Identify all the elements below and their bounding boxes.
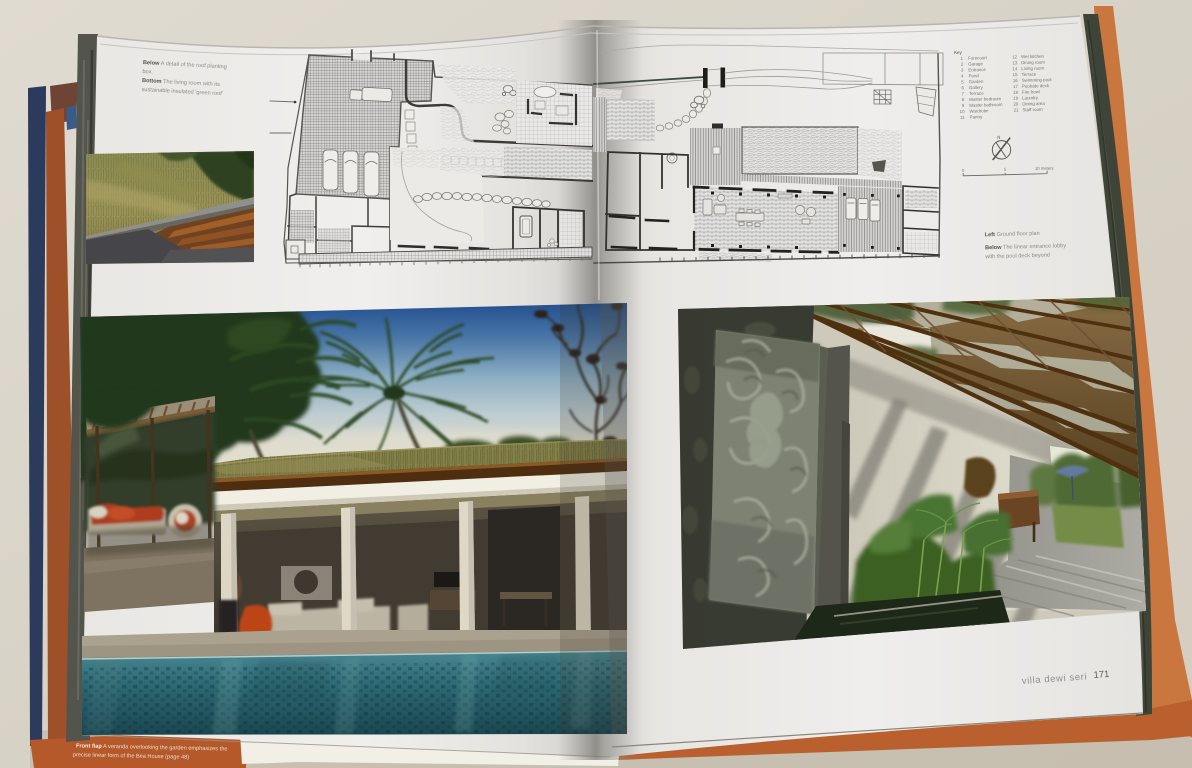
svg-text:Living room: Living room — [1021, 65, 1044, 71]
svg-text:Poolside deck: Poolside deck — [1022, 83, 1050, 89]
svg-text:Wet kitchen: Wet kitchen — [1021, 54, 1045, 60]
svg-text:Dining area: Dining area — [1022, 101, 1045, 107]
svg-text:Wardrobe: Wardrobe — [969, 108, 989, 114]
svg-text:N: N — [997, 135, 1000, 140]
svg-text:Dining room: Dining room — [1021, 60, 1045, 66]
svg-text:Fire bowl: Fire bowl — [1022, 89, 1040, 94]
svg-text:Garage: Garage — [968, 61, 983, 66]
svg-text:Pond: Pond — [968, 73, 979, 78]
svg-text:Forecourt: Forecourt — [968, 55, 988, 61]
svg-text:Master bathroom: Master bathroom — [969, 102, 1003, 108]
svg-text:15: 15 — [1013, 72, 1019, 77]
svg-text:Entrance: Entrance — [968, 67, 986, 72]
svg-text:box.: box. — [142, 69, 153, 76]
svg-text:Key: Key — [954, 50, 963, 55]
svg-text:11: 11 — [960, 115, 965, 120]
svg-text:Gallery: Gallery — [969, 85, 984, 90]
svg-text:10: 10 — [960, 109, 966, 114]
svg-text:13: 13 — [1012, 60, 1018, 65]
svg-text:Swimming pool: Swimming pool — [1022, 77, 1052, 83]
svg-text:18: 18 — [1013, 90, 1019, 95]
svg-text:14: 14 — [1012, 66, 1018, 71]
svg-text:Terrace: Terrace — [1021, 72, 1036, 77]
svg-text:Pantry: Pantry — [970, 114, 984, 119]
svg-text:21: 21 — [1014, 107, 1020, 112]
svg-text:19: 19 — [1013, 96, 1019, 101]
svg-text:12: 12 — [1012, 54, 1018, 59]
svg-text:Terrace: Terrace — [969, 91, 984, 96]
svg-text:Laundry: Laundry — [1022, 95, 1039, 100]
svg-text:10 meters: 10 meters — [1035, 165, 1054, 170]
svg-text:17: 17 — [1013, 84, 1019, 89]
svg-text:20: 20 — [1013, 102, 1019, 107]
svg-text:Staff room: Staff room — [1022, 107, 1043, 113]
svg-text:16: 16 — [1013, 78, 1019, 83]
svg-text:Master bedroom: Master bedroom — [969, 96, 1001, 102]
svg-text:Garden: Garden — [969, 79, 984, 84]
svg-text:171: 171 — [1093, 669, 1110, 681]
